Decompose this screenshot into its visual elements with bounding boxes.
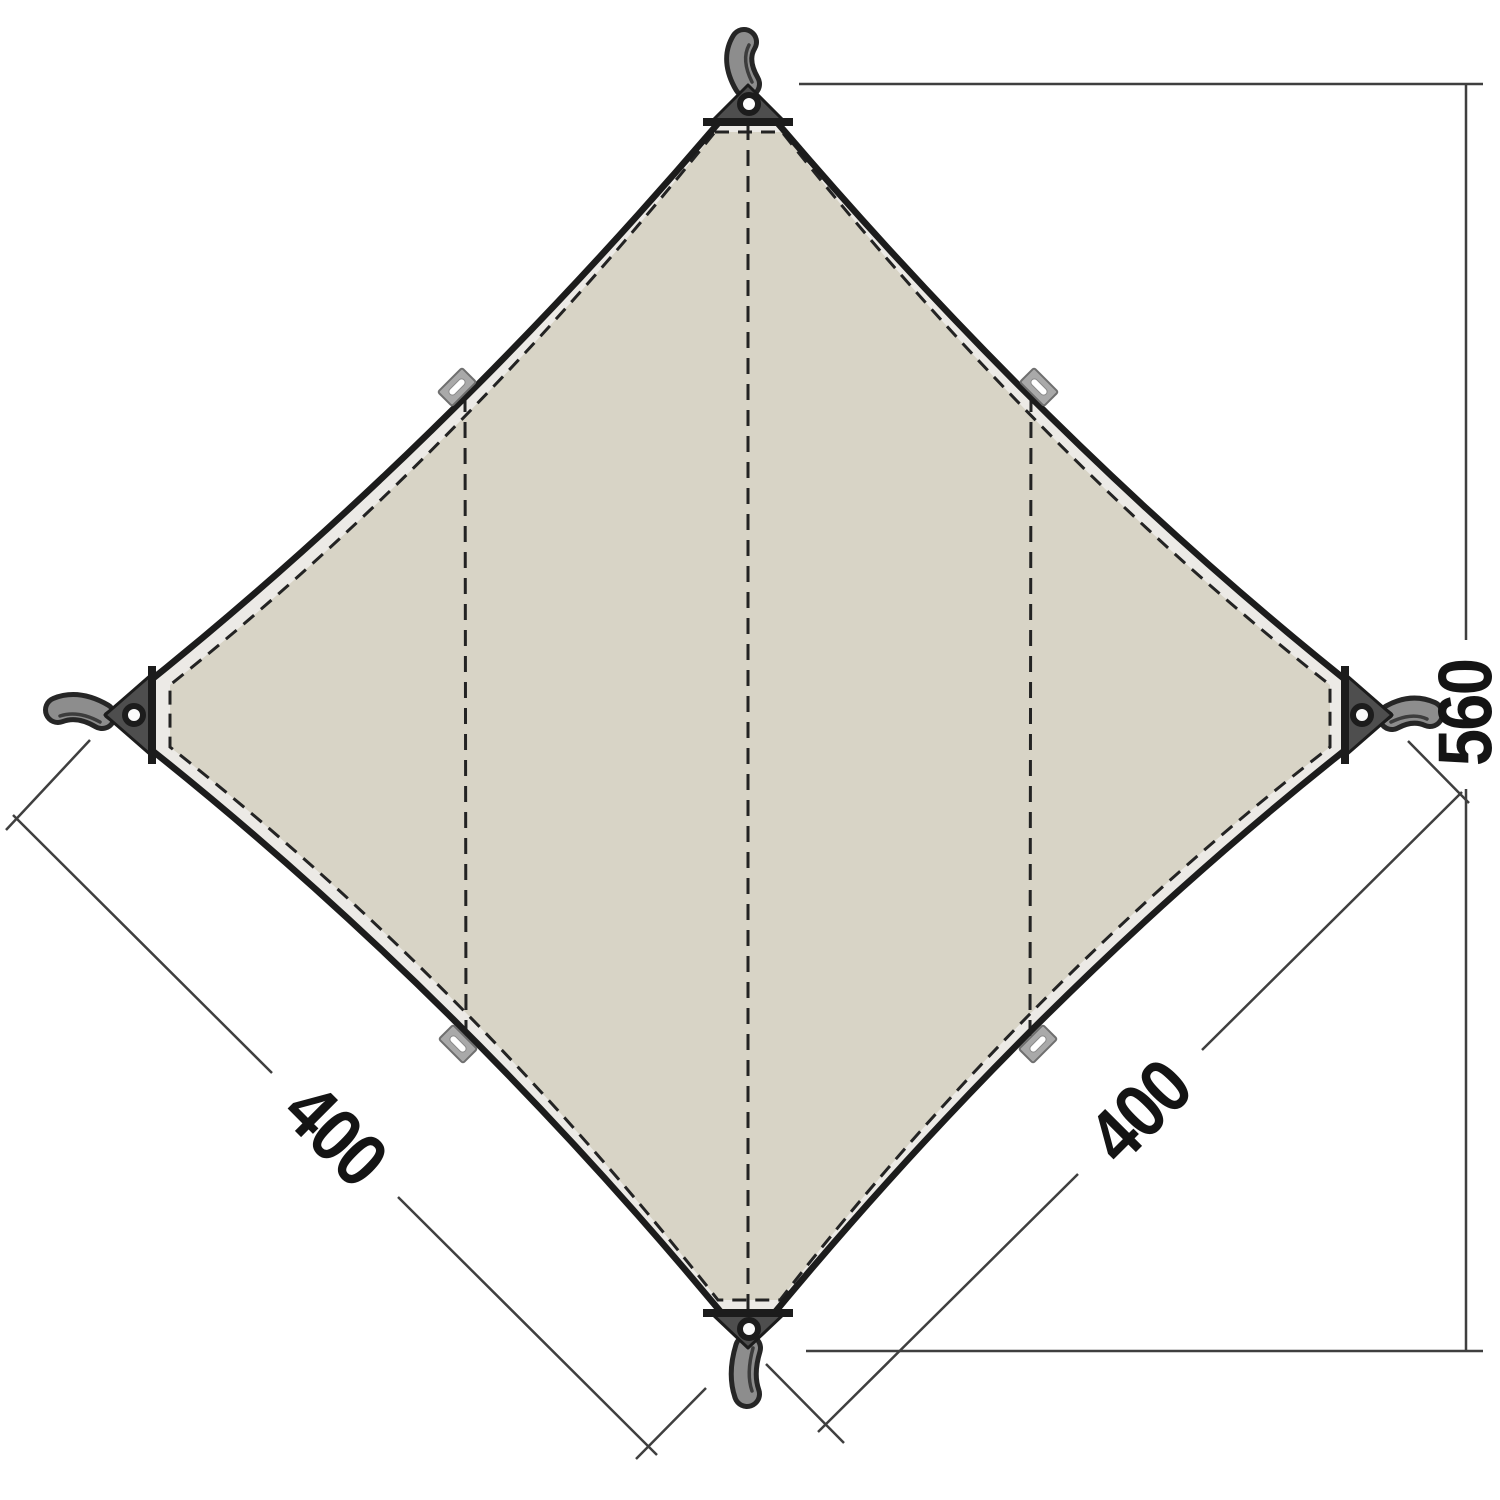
corner-loop-left — [58, 707, 102, 722]
dimension-label-400-left: 400 — [267, 1067, 402, 1202]
diagram-canvas: 560 400 400 — [0, 0, 1500, 1500]
extension-line-left-corner — [6, 740, 90, 830]
dimension-line-400-left-a — [13, 815, 272, 1073]
grommet-top — [740, 95, 758, 113]
dimension-line-400-left-b — [398, 1197, 657, 1455]
grommet-right — [1353, 706, 1371, 724]
grommet-bottom — [740, 1320, 758, 1338]
corner-loop-top — [739, 42, 752, 84]
extension-line-bottom-corner-right — [766, 1364, 844, 1443]
extension-line-bottom-corner-left — [636, 1388, 706, 1459]
dimension-label-560: 560 — [1424, 660, 1500, 766]
grommet-left — [125, 706, 143, 724]
dimension-label-400-right: 400 — [1072, 1044, 1207, 1179]
tarp-floorplan-diagram: 560 400 400 — [0, 0, 1500, 1500]
corner-loop-bottom — [744, 1348, 753, 1394]
